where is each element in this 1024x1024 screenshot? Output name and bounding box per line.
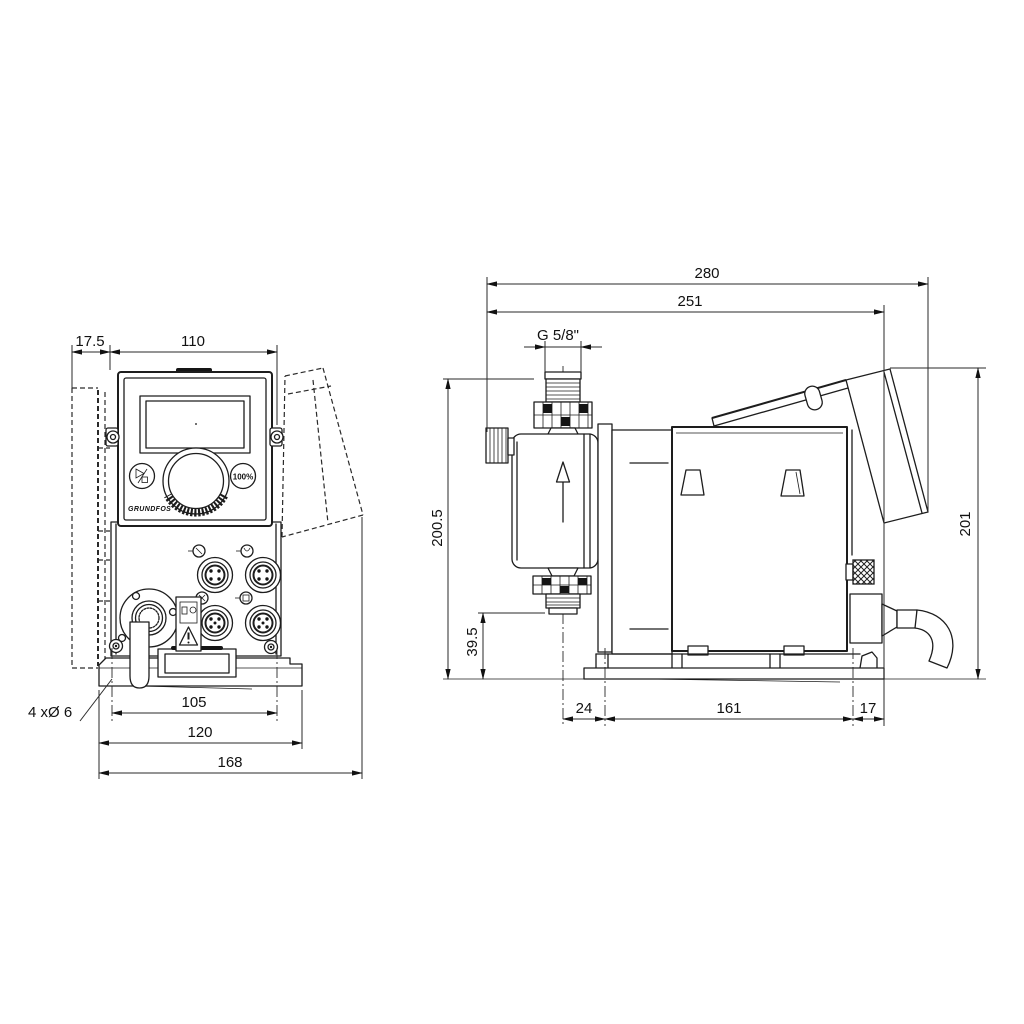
start-stop-button (130, 464, 155, 489)
dim-foot-hole-spacing: 161 (716, 700, 741, 717)
hole-callout: 4 xØ 6 (28, 704, 72, 721)
capacity-button: 100% (231, 464, 256, 489)
dim-overall-height: 201 (957, 511, 974, 536)
connector-socket (198, 606, 233, 641)
connector-socket (198, 558, 233, 593)
dim-height-to-connection: 200.5 (429, 509, 446, 547)
dim-body-depth: 251 (677, 293, 702, 310)
display (140, 396, 250, 453)
mounting-base-side (584, 652, 884, 682)
power-cable (915, 610, 953, 668)
wall-plate-hidden-outline (72, 388, 110, 668)
drain-tube (130, 622, 149, 688)
dosing-head (486, 366, 598, 726)
rear-threaded-plug (853, 560, 874, 584)
warning-label (176, 597, 201, 651)
dim-connection-thread: G 5/8" (537, 327, 579, 344)
dim-panel-width: 110 (181, 333, 205, 350)
discharge-thread (546, 379, 580, 402)
hood-grip-slot (803, 384, 824, 411)
hole-callout-leader (80, 679, 112, 721)
dosing-pump-dimensional-drawing: 100% GRUNDFOS (0, 0, 1024, 1024)
front-view: 100% GRUNDFOS (28, 333, 363, 779)
connector-socket (246, 558, 281, 593)
pump-body-side (598, 424, 852, 655)
discharge-union-nut (534, 402, 592, 428)
dim-hole-spacing: 105 (181, 694, 206, 711)
dim-overall-width: 168 (217, 754, 242, 771)
deaeration-knob (486, 428, 514, 463)
capacity-button-label: 100% (233, 473, 253, 482)
suction-union-nut (533, 576, 591, 594)
dim-overall-depth: 280 (694, 265, 719, 282)
dim-base-width: 120 (187, 724, 212, 741)
suction-thread (546, 594, 580, 608)
rear-connections (846, 560, 953, 668)
click-wheel (163, 448, 229, 514)
side-view: 280 251 G 5/8" 200.5 39.5 201 (429, 265, 986, 726)
grundfos-logo: GRUNDFOS (128, 506, 171, 513)
dim-rear-offset: 17 (860, 700, 877, 717)
control-panel: 100% GRUNDFOS (118, 368, 272, 526)
dim-plate-offset: 17.5 (75, 333, 104, 350)
dim-outlet-height: 39.5 (464, 627, 481, 656)
hood-hidden-outline (282, 368, 363, 537)
connector-socket (246, 606, 281, 641)
dim-front-offset: 24 (576, 700, 593, 717)
technical-drawing-page: 100% GRUNDFOS (0, 0, 1024, 1024)
